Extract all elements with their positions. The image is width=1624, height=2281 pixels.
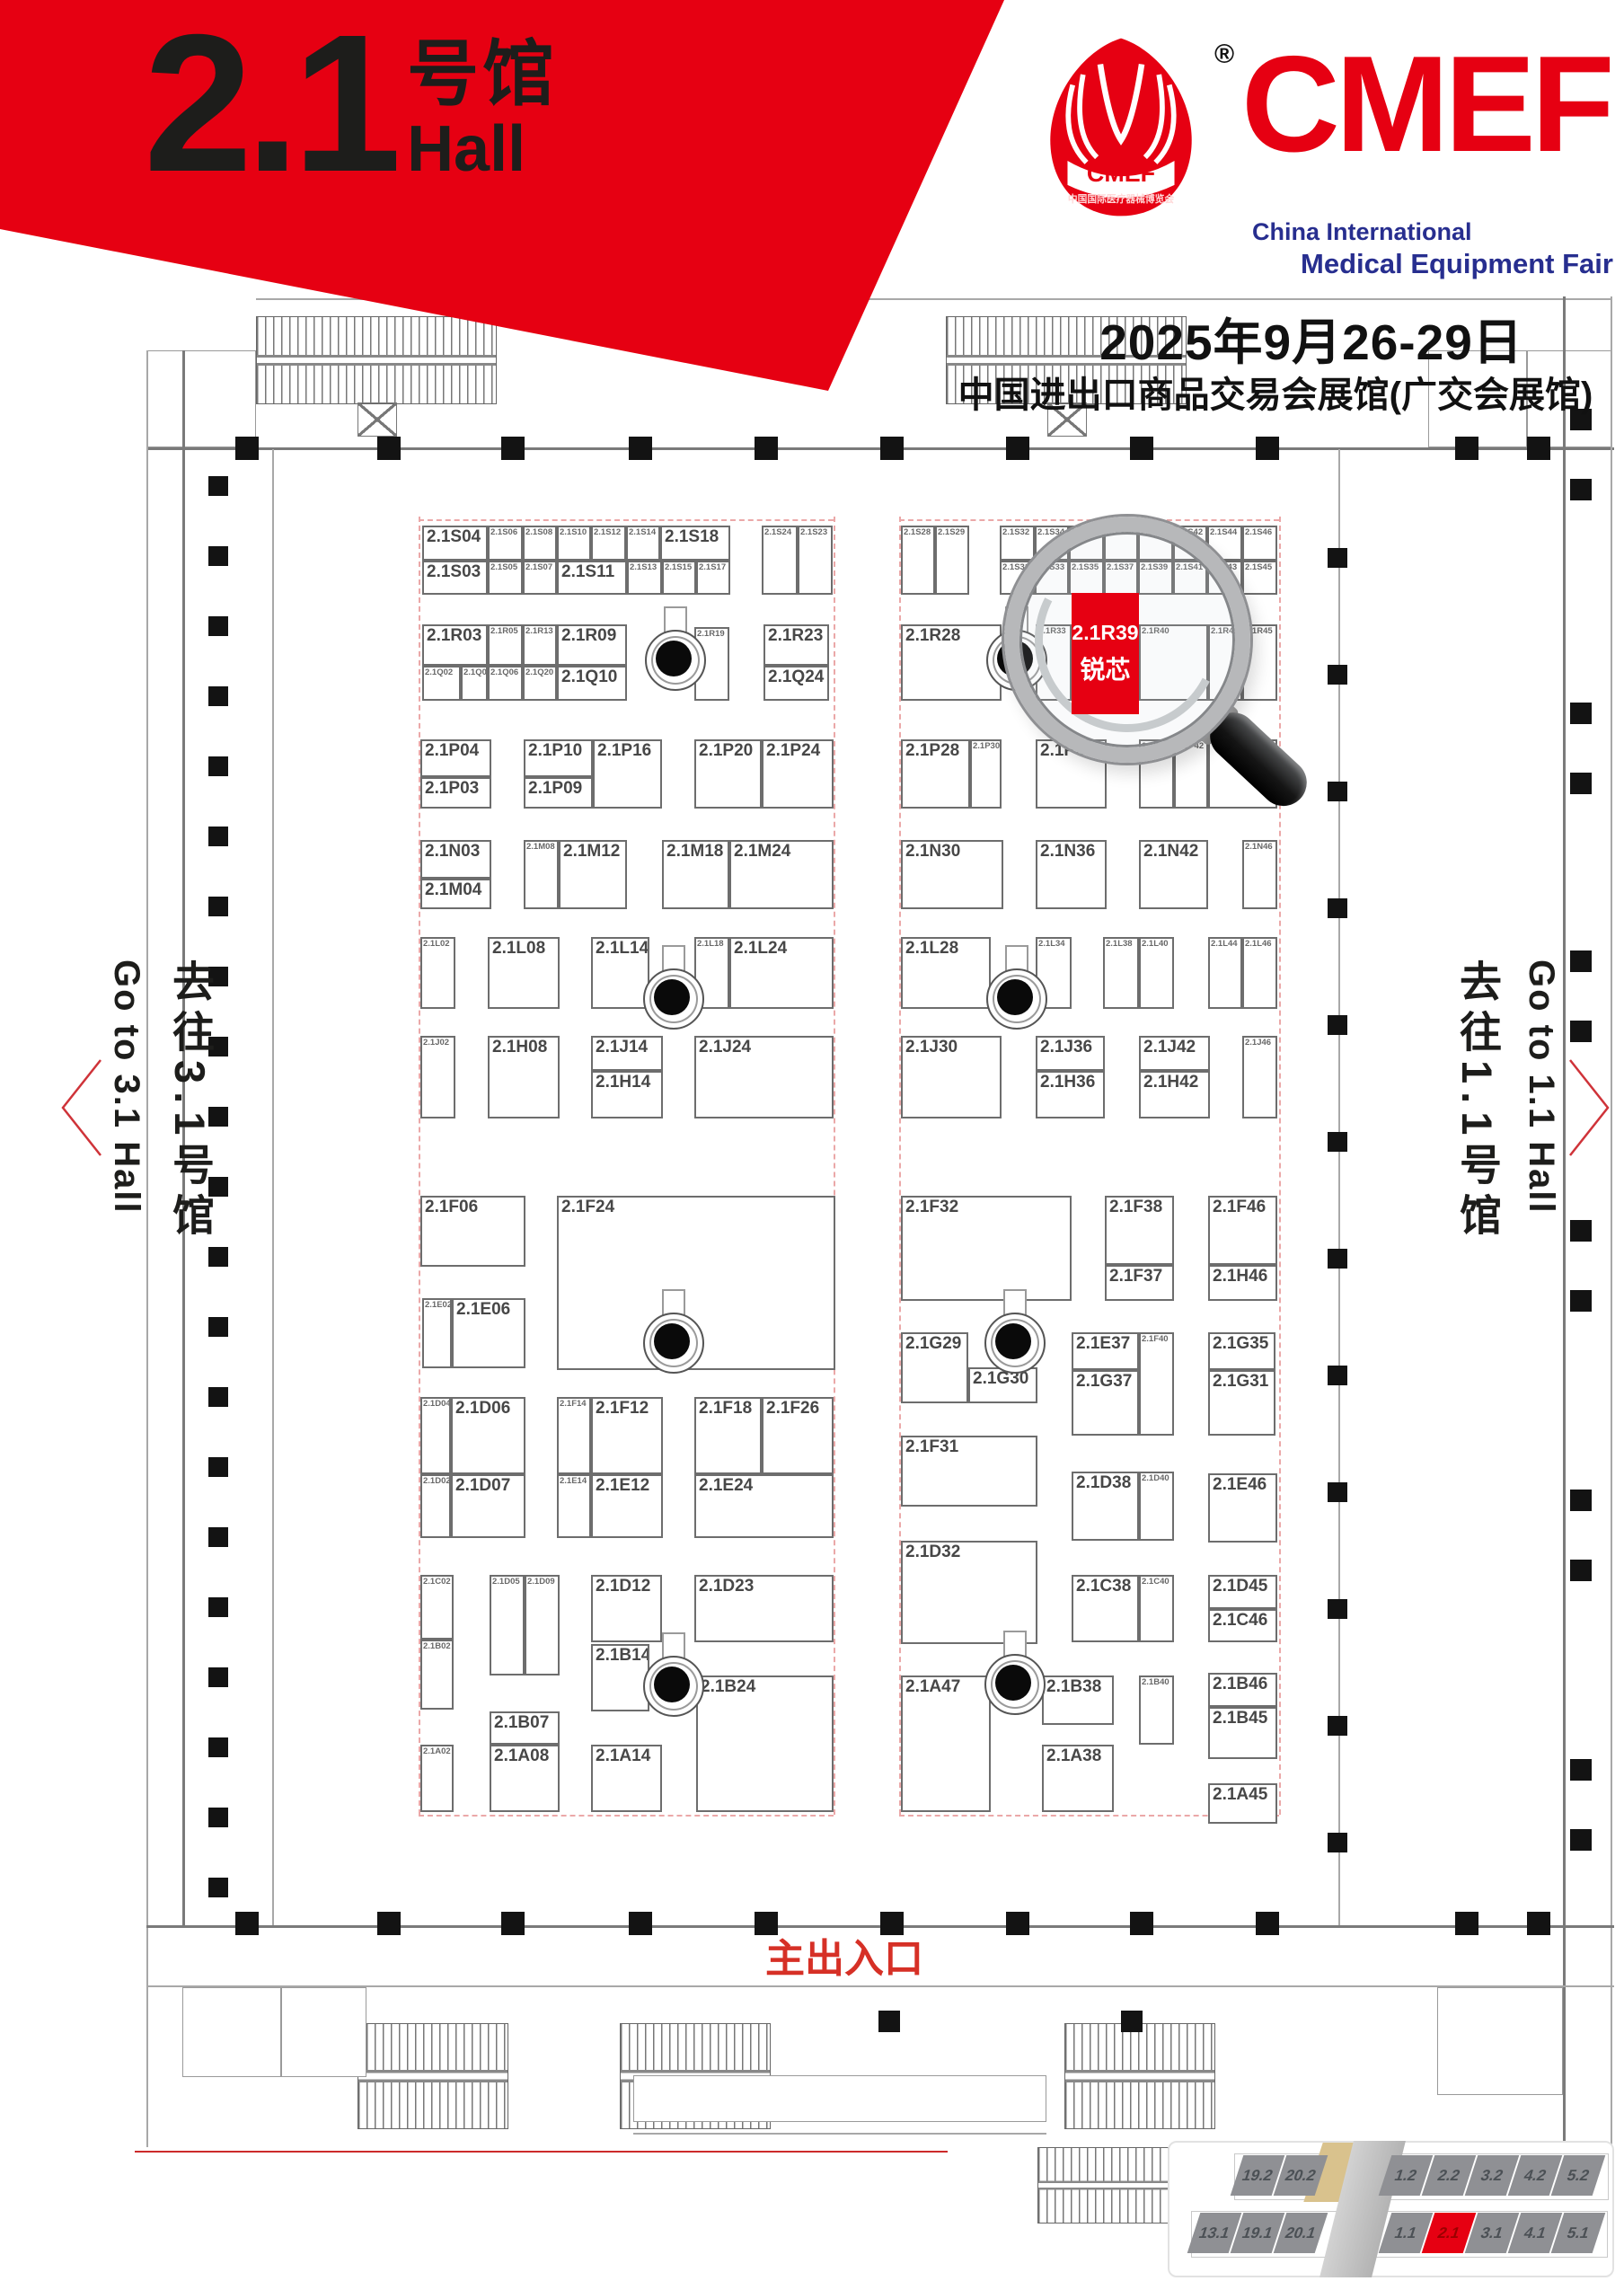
go-to-3-1-hall-sign: Go to 3.1 Hall 去往3.1号馆 <box>106 959 221 1243</box>
booth-2.1S10: 2.1S10 <box>557 526 591 561</box>
event-venue: 中国进出口商品交易会展馆(广交会展馆) <box>934 366 1617 418</box>
pillar <box>1570 1560 1592 1581</box>
pillar <box>1570 1759 1592 1781</box>
brand-tagline: China International Medical Equipment Fa… <box>1249 218 1617 280</box>
column-pillar-core <box>654 979 690 1015</box>
pillar <box>1328 1482 1347 1502</box>
column-pillar-icon <box>645 630 706 691</box>
booth-2.1C02: 2.1C02 <box>420 1575 454 1640</box>
column-pillar-icon <box>984 1654 1046 1715</box>
logo-text: CMEF <box>1087 160 1155 187</box>
booth-2.1S14: 2.1S14 <box>626 526 660 561</box>
pillar <box>1455 1912 1478 1935</box>
pillar <box>1527 1912 1550 1935</box>
booth-2.1E12: 2.1E12 <box>591 1474 663 1538</box>
booth-2.1P03: 2.1P03 <box>420 777 491 809</box>
booth-2.1J42: 2.1J42 <box>1139 1036 1210 1071</box>
booth-2.1M24: 2.1M24 <box>729 840 834 909</box>
booth-2.1B07: 2.1B07 <box>490 1711 560 1745</box>
hall-title-cn: 号馆 <box>407 36 558 113</box>
booth-2.1F32: 2.1F32 <box>901 1196 1072 1301</box>
booth-2.1P24: 2.1P24 <box>762 739 834 809</box>
pillar <box>208 1527 228 1547</box>
booth-2.1F40: 2.1F40 <box>1139 1332 1174 1436</box>
event-dates: 2025年9月26-29日 <box>1006 302 1617 374</box>
booth-2.1J30: 2.1J30 <box>901 1036 1002 1118</box>
booth-2.1M18: 2.1M18 <box>662 840 729 909</box>
booth-2.1D06: 2.1D06 <box>451 1397 525 1474</box>
booth-2.1S18: 2.1S18 <box>660 526 730 561</box>
pillar <box>208 1667 228 1687</box>
booth-2.1L40: 2.1L40 <box>1139 937 1174 1009</box>
pillar <box>1328 548 1347 568</box>
booth-2.1S12: 2.1S12 <box>591 526 626 561</box>
booth-2.1S23: 2.1S23 <box>798 526 833 595</box>
booth-2.1D40: 2.1D40 <box>1139 1472 1174 1541</box>
pillar <box>208 1808 228 1827</box>
guide-dash <box>419 519 834 521</box>
booth-2.1D07: 2.1D07 <box>451 1474 525 1538</box>
booth-2.1D05: 2.1D05 <box>490 1575 525 1675</box>
booth-2.1A47: 2.1A47 <box>901 1675 991 1812</box>
booth-2.1S04: 2.1S04 <box>422 526 488 561</box>
poster: 2.1 号馆 Hall CMEF 中国国际医疗器械博览会 ® CMEF Chin… <box>0 0 1624 2281</box>
stair <box>357 2023 508 2129</box>
pillar <box>1130 437 1153 460</box>
booth-2.1J36: 2.1J36 <box>1036 1036 1105 1071</box>
pillar <box>1328 1599 1347 1619</box>
booth-2.1S45: 2.1S45 <box>1242 561 1277 595</box>
pillar <box>1570 703 1592 724</box>
left-arrow-icon <box>59 1058 104 1159</box>
booth-2.1S17: 2.1S17 <box>696 561 730 595</box>
booth-2.1P16: 2.1P16 <box>593 739 662 809</box>
booth-2.1Q20: 2.1Q20 <box>523 666 557 701</box>
booth-2.1L14: 2.1L14 <box>591 937 649 1009</box>
column-pillar-core <box>656 641 692 676</box>
booth-2.1N46: 2.1N46 <box>1242 840 1277 909</box>
hall-number: 2.1 <box>144 7 394 200</box>
booth-2.1F37: 2.1F37 <box>1105 1265 1174 1301</box>
box <box>182 1987 281 2077</box>
pillar <box>1328 1015 1347 1035</box>
pillar <box>1328 1132 1347 1152</box>
venue-overview-map: 19.220.21.22.23.24.25.213.119.120.11.12.… <box>1168 2141 1614 2277</box>
pillar <box>629 437 652 460</box>
booth-2.1F14: 2.1F14 <box>557 1397 591 1474</box>
booth-2.1L24: 2.1L24 <box>729 937 834 1009</box>
booth-2.1D09: 2.1D09 <box>525 1575 560 1675</box>
booth-2.1J14: 2.1J14 <box>591 1036 663 1071</box>
booth-2.1S24: 2.1S24 <box>762 526 798 595</box>
pillar <box>1328 1833 1347 1852</box>
registered-mark: ® <box>1214 40 1234 70</box>
booth-2.1Q02: 2.1Q02 <box>422 666 461 701</box>
column-pillar-icon <box>643 1313 704 1374</box>
booth-2.1Q06: 2.1Q06 <box>488 666 523 701</box>
cmef-logo-icon: CMEF 中国国际医疗器械博览会 <box>1035 36 1207 220</box>
pillar <box>208 1878 228 1897</box>
column-pillar-core <box>654 1667 690 1702</box>
booth-2.1S03: 2.1S03 <box>422 561 488 595</box>
booth-2.1S06: 2.1S06 <box>488 526 523 561</box>
pillar <box>377 1912 401 1935</box>
pillar <box>377 437 401 460</box>
box <box>1437 1987 1563 2095</box>
booth-2.1F18: 2.1F18 <box>694 1397 762 1474</box>
logo-cn-text: 中国国际医疗器械博览会 <box>1068 193 1175 205</box>
pillar <box>208 476 228 496</box>
booth-2.1F12: 2.1F12 <box>591 1397 663 1474</box>
booth-2.1D04: 2.1D04 <box>420 1397 451 1474</box>
pillar <box>1527 437 1550 460</box>
booth-2.1S32: 2.1S32 <box>1000 526 1035 561</box>
booth-2.1D32: 2.1D32 <box>901 1541 1037 1644</box>
booth-2.1F46: 2.1F46 <box>1208 1196 1277 1265</box>
guide-dash <box>834 517 835 1815</box>
booth-2.1S46: 2.1S46 <box>1242 526 1277 561</box>
booth-2.1S29: 2.1S29 <box>935 526 969 595</box>
pillar <box>1570 950 1592 972</box>
stair <box>256 316 497 404</box>
booth-2.1S08: 2.1S08 <box>523 526 557 561</box>
booth-2.1L08: 2.1L08 <box>488 937 560 1009</box>
go-to-1-1-hall-sign: 去往1.1号馆 Go to 1.1 Hall <box>1446 959 1561 1243</box>
booth-2.1L46: 2.1L46 <box>1242 937 1277 1009</box>
booth-2.1H08: 2.1H08 <box>488 1036 560 1118</box>
booth-2.1Q10: 2.1Q10 <box>557 666 627 701</box>
booth-2.1F38: 2.1F38 <box>1105 1196 1174 1265</box>
booth-2.1B40: 2.1B40 <box>1139 1675 1174 1745</box>
booth-2.1G29: 2.1G29 <box>901 1332 968 1403</box>
pillar <box>1006 1912 1029 1935</box>
booth-2.1S13: 2.1S13 <box>627 561 662 595</box>
booth-2.1M04: 2.1M04 <box>420 879 491 909</box>
booth-2.1G37: 2.1G37 <box>1072 1370 1139 1436</box>
booth-2.1D45: 2.1D45 <box>1208 1575 1277 1609</box>
pillar <box>1570 1021 1592 1042</box>
booth-2.1P04: 2.1P04 <box>420 739 491 777</box>
booth-2.1M08: 2.1M08 <box>524 840 559 909</box>
guide-dash <box>1279 517 1281 1815</box>
pillar <box>501 1912 525 1935</box>
booth-2.1H36: 2.1H36 <box>1036 1071 1105 1118</box>
main-entrance-label: 主出入口 <box>765 1926 923 1984</box>
ln <box>146 350 148 2147</box>
column-pillar-icon <box>984 1313 1046 1374</box>
red-ln <box>135 2151 948 2153</box>
left-sign-cn: 去往3.1号馆 <box>159 959 221 1243</box>
booth-2.1E06: 2.1E06 <box>452 1298 525 1368</box>
guide-dash <box>899 519 1279 521</box>
pillar <box>501 437 525 460</box>
booth-2.1R23: 2.1R23 <box>763 624 829 666</box>
tagline-line1: China International <box>1252 218 1617 246</box>
wall <box>1563 296 1566 2147</box>
booth-2.1E14: 2.1E14 <box>557 1474 591 1538</box>
booth-2.1J46: 2.1J46 <box>1242 1036 1277 1118</box>
booth-2.1H14: 2.1H14 <box>591 1071 663 1118</box>
booth-2.1P09: 2.1P09 <box>524 777 593 809</box>
booth-2.1N42: 2.1N42 <box>1139 840 1208 909</box>
pillar <box>208 1597 228 1617</box>
pillar <box>1570 1490 1592 1511</box>
booth-2.1C38: 2.1C38 <box>1072 1575 1139 1642</box>
pillar <box>235 437 259 460</box>
booth-2.1N36: 2.1N36 <box>1036 840 1107 909</box>
booth-2.1R13: 2.1R13 <box>523 624 557 666</box>
pillar <box>235 1912 259 1935</box>
pillar <box>629 1912 652 1935</box>
booth-2.1S28: 2.1S28 <box>901 526 935 595</box>
booth-2.1Q24: 2.1Q24 <box>763 666 829 701</box>
pillar <box>208 1737 228 1757</box>
booth-2.1H42: 2.1H42 <box>1139 1071 1210 1118</box>
column-pillar-icon <box>643 968 704 1030</box>
pillar <box>1328 665 1347 685</box>
booth-2.1F06: 2.1F06 <box>420 1196 525 1267</box>
right-arrow-icon <box>1567 1058 1611 1159</box>
magnifier-ring-icon <box>1004 517 1250 763</box>
pillar <box>208 897 228 916</box>
booth-2.1S15: 2.1S15 <box>662 561 696 595</box>
ln <box>272 449 274 1927</box>
booth-2.1B14: 2.1B14 <box>591 1644 649 1711</box>
pillar <box>1328 782 1347 801</box>
pillar <box>755 437 778 460</box>
pillar <box>1570 773 1592 794</box>
booth-2.1R09: 2.1R09 <box>557 624 627 666</box>
booth-2.1S05: 2.1S05 <box>488 561 523 595</box>
booth-2.1L44: 2.1L44 <box>1208 937 1242 1009</box>
booth-2.1R03: 2.1R03 <box>422 624 488 666</box>
pillar <box>880 437 904 460</box>
booth-2.1B38: 2.1B38 <box>1042 1675 1114 1725</box>
pillar <box>208 756 228 776</box>
booth-2.1B45: 2.1B45 <box>1208 1707 1277 1759</box>
booth-2.1A38: 2.1A38 <box>1042 1745 1114 1812</box>
booth-2.1F26: 2.1F26 <box>762 1397 834 1474</box>
pillar <box>208 1317 228 1337</box>
pillar <box>1256 1912 1279 1935</box>
booth-2.1N30: 2.1N30 <box>901 840 1003 909</box>
pillar <box>1570 1290 1592 1312</box>
pillar <box>208 686 228 706</box>
booth-2.1S11: 2.1S11 <box>557 561 627 595</box>
pillar <box>1121 2011 1143 2032</box>
booth-2.1G31: 2.1G31 <box>1208 1370 1275 1436</box>
booth-2.1B24: 2.1B24 <box>696 1675 834 1812</box>
pillar <box>1006 437 1029 460</box>
booth-2.1H46: 2.1H46 <box>1208 1265 1277 1301</box>
left-sign-en: Go to 3.1 Hall <box>106 959 146 1243</box>
pillar <box>208 616 228 636</box>
ln <box>1611 296 1612 2147</box>
pillar <box>208 1457 228 1477</box>
cmef-wordmark: CMEF <box>1241 32 1611 176</box>
booth-2.1E37: 2.1E37 <box>1072 1332 1139 1370</box>
booth-2.1A45: 2.1A45 <box>1208 1783 1277 1824</box>
ln <box>146 1985 1614 1987</box>
booth-2.1D02: 2.1D02 <box>420 1474 451 1538</box>
booth-2.1E46: 2.1E46 <box>1208 1473 1277 1543</box>
stair <box>1064 2023 1215 2129</box>
booth-2.1A14: 2.1A14 <box>591 1745 662 1812</box>
hall-title: 2.1 号馆 Hall <box>144 7 558 200</box>
pillar <box>1328 1366 1347 1385</box>
box <box>146 350 256 447</box>
pillar <box>1570 1829 1592 1851</box>
column-pillar-core <box>995 1665 1031 1701</box>
pillar <box>1256 437 1279 460</box>
booth-2.1M12: 2.1M12 <box>559 840 627 909</box>
booth-2.1L02: 2.1L02 <box>420 937 455 1009</box>
pillar <box>208 1387 228 1407</box>
pillar <box>878 2011 900 2032</box>
booth-2.1G30: 2.1G30 <box>968 1367 1037 1403</box>
pillar <box>208 827 228 846</box>
booth-2.1P20: 2.1P20 <box>694 739 762 809</box>
pillar <box>208 546 228 566</box>
pillar <box>1328 1249 1347 1269</box>
booth-2.1B02: 2.1B02 <box>420 1640 454 1710</box>
booth-2.1Q04: 2.1Q04 <box>461 666 488 701</box>
pillar <box>208 1247 228 1267</box>
booth-2.1E02: 2.1E02 <box>422 1298 452 1368</box>
booth-2.1C40: 2.1C40 <box>1139 1575 1174 1642</box>
booth-2.1N03: 2.1N03 <box>420 840 491 879</box>
booth-2.1B46: 2.1B46 <box>1208 1673 1277 1707</box>
pillar <box>1455 437 1478 460</box>
ln <box>633 2133 1046 2135</box>
booth-2.1D23: 2.1D23 <box>694 1575 834 1642</box>
pillar <box>1130 1912 1153 1935</box>
pillar <box>1328 898 1347 918</box>
booth-2.1P10: 2.1P10 <box>524 739 593 777</box>
xbox <box>357 402 397 437</box>
booth-2.1C46: 2.1C46 <box>1208 1609 1277 1642</box>
column-pillar-core <box>997 979 1033 1015</box>
booth-2.1J24: 2.1J24 <box>694 1036 834 1118</box>
hall-title-en: Hall <box>407 113 558 185</box>
box <box>281 1987 366 2077</box>
column-pillar-icon <box>643 1656 704 1717</box>
box <box>633 2075 1046 2122</box>
booth-2.1D12: 2.1D12 <box>591 1575 662 1642</box>
booth-2.1S07: 2.1S07 <box>523 561 557 595</box>
pillar <box>1570 1220 1592 1242</box>
column-pillar-core <box>995 1323 1031 1359</box>
booth-2.1D38: 2.1D38 <box>1072 1472 1139 1541</box>
column-pillar-core <box>654 1323 690 1359</box>
pillar <box>1570 479 1592 500</box>
right-sign-cn: 去往1.1号馆 <box>1446 959 1508 1243</box>
pillar <box>1328 1716 1347 1736</box>
booth-2.1E24: 2.1E24 <box>694 1474 834 1538</box>
booth-2.1P28: 2.1P28 <box>901 739 970 809</box>
booth-2.1G35: 2.1G35 <box>1208 1332 1275 1370</box>
booth-2.1A08: 2.1A08 <box>490 1745 560 1812</box>
booth-2.1A02: 2.1A02 <box>420 1745 454 1812</box>
booth-2.1L28: 2.1L28 <box>901 937 991 1009</box>
right-sign-en: Go to 1.1 Hall <box>1521 959 1561 1243</box>
booth-2.1L38: 2.1L38 <box>1103 937 1139 1009</box>
tagline-line2: Medical Equipment Fair <box>1301 248 1617 280</box>
booth-2.1J02: 2.1J02 <box>420 1036 455 1118</box>
column-pillar-icon <box>986 968 1047 1030</box>
guide-dash <box>419 1815 834 1817</box>
booth-2.1P30: 2.1P30 <box>970 739 1002 809</box>
booth-2.1F31: 2.1F31 <box>901 1436 1037 1507</box>
booth-2.1R05: 2.1R05 <box>488 624 523 666</box>
